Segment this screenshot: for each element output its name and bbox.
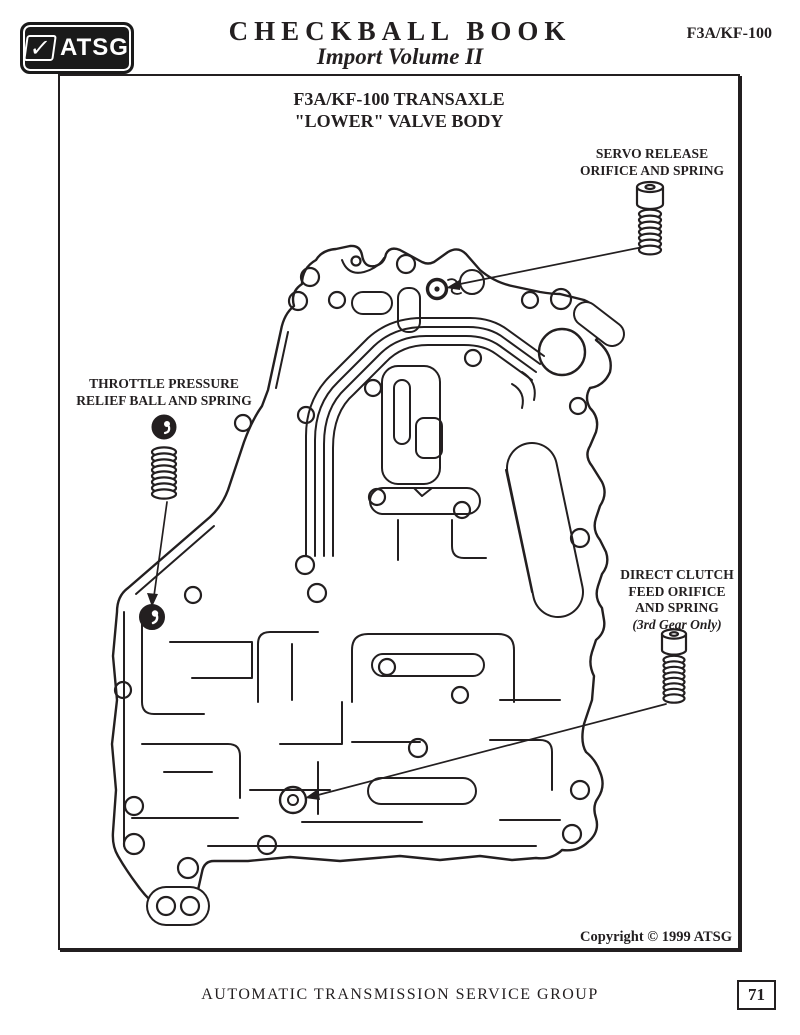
callout-servo-release: SERVO RELEASE ORIFICE AND SPRING	[538, 146, 766, 179]
footer-organization: AUTOMATIC TRANSMISSION SERVICE GROUP	[0, 986, 800, 1004]
doc-code: F3A/KF-100	[687, 25, 772, 43]
callout-direct-note: (3rd Gear Only)	[592, 617, 762, 634]
book-page: ✓ ATSG CHECKBALL BOOK Import Volume II F…	[0, 0, 800, 1035]
callout-direct-line1: DIRECT CLUTCH	[592, 567, 762, 584]
book-subtitle: Import Volume II	[0, 44, 800, 70]
callout-direct-clutch: DIRECT CLUTCH FEED ORIFICE AND SPRING (3…	[592, 567, 762, 633]
callout-servo-line2: ORIFICE AND SPRING	[538, 163, 766, 180]
diagram-title-line2: "LOWER" VALVE BODY	[58, 110, 740, 132]
callout-throttle-relief: THROTTLE PRESSURE RELIEF BALL AND SPRING	[58, 376, 270, 409]
diagram-title-line1: F3A/KF-100 TRANSAXLE	[58, 88, 740, 110]
callout-throttle-line2: RELIEF BALL AND SPRING	[58, 393, 270, 410]
callout-direct-line2: FEED ORIFICE	[592, 584, 762, 601]
callout-servo-line1: SERVO RELEASE	[538, 146, 766, 163]
callout-throttle-line1: THROTTLE PRESSURE	[58, 376, 270, 393]
page-number: 71	[737, 980, 776, 1010]
diagram-frame	[58, 74, 740, 950]
callout-direct-line3: AND SPRING	[592, 600, 762, 617]
book-title: CHECKBALL BOOK	[0, 16, 800, 47]
copyright-line: Copyright © 1999 ATSG	[580, 929, 732, 946]
diagram-title: F3A/KF-100 TRANSAXLE "LOWER" VALVE BODY	[58, 88, 740, 132]
